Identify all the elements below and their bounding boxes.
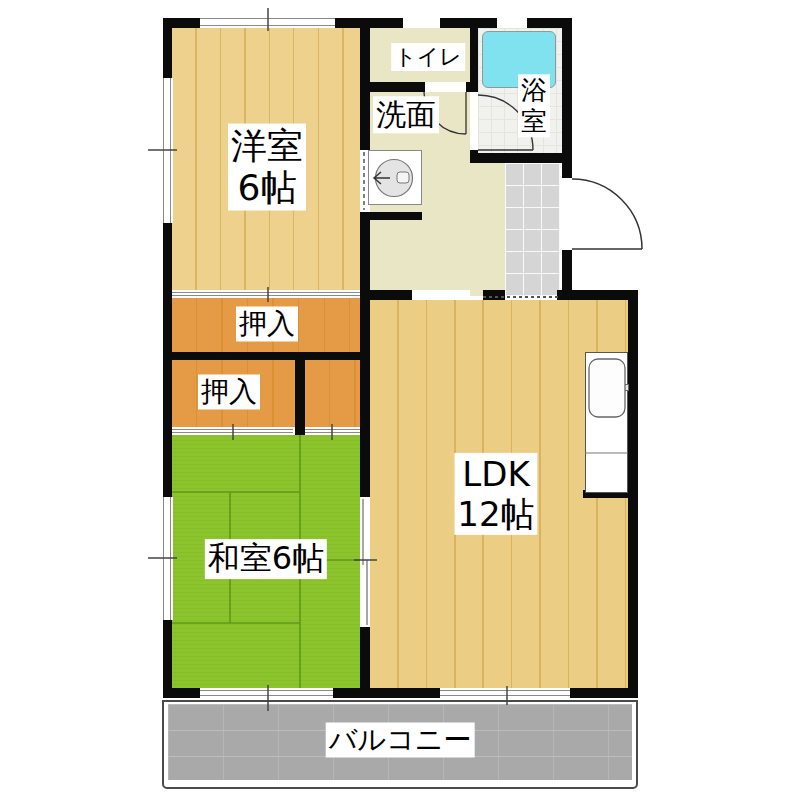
western-room-label: 洋室 6帖	[228, 124, 306, 211]
ldk-label: LDK 12帖	[454, 453, 537, 535]
fusuma-closet-lower	[172, 427, 293, 435]
wall-western-east-lower	[360, 220, 370, 290]
entrance-door-opening	[562, 178, 572, 250]
wall-mid-upper	[360, 290, 370, 497]
wall-step	[557, 290, 638, 300]
closet-upper-label: 押入	[236, 306, 298, 341]
wall-closet-bottom	[163, 352, 370, 360]
bathroom-label-line1: 浴	[521, 75, 547, 106]
kitchen-counter	[585, 352, 628, 493]
ldk-label-line2: 12帖	[457, 494, 534, 534]
window-bathroom-top	[497, 18, 527, 28]
wall-toilet-bottom-a	[360, 82, 425, 92]
apartment-floorplan: 洋室 6帖 トイレ 洗面 浴 室 押入 押入 和室6帖 LDK 12帖 バルコニ…	[0, 0, 800, 800]
washbasin-cabinet	[368, 150, 422, 205]
wall-closet-divider	[295, 360, 305, 435]
fusuma-closet-side	[305, 427, 360, 435]
wall-hall-south-b	[483, 290, 505, 300]
washroom-label: 洗面	[373, 96, 439, 133]
window-japanese-left	[161, 497, 173, 620]
bathroom-door-opening	[470, 92, 478, 150]
closet-lower-label: 押入	[198, 374, 260, 409]
wall-mid-lower	[360, 627, 370, 688]
western-room-label-line1: 洋室	[231, 125, 303, 167]
wall-right-lower	[628, 293, 638, 698]
window-western-top	[200, 16, 335, 28]
bathroom-label-line2: 室	[521, 106, 547, 137]
entry-tile-floor	[505, 163, 560, 296]
fusuma-closet-upper	[172, 290, 360, 298]
wall-washbasin-stub	[360, 212, 422, 220]
wall-right-upper	[562, 18, 572, 293]
window-ldk-balcony	[440, 688, 570, 698]
western-room-label-line2: 6帖	[231, 167, 303, 209]
balcony-label: バルコニー	[326, 722, 475, 757]
japanese-room-label: 和室6帖	[205, 539, 327, 579]
window-japanese-balcony	[200, 688, 333, 698]
toilet-door-opening	[425, 82, 466, 92]
window-toilet-top	[403, 18, 440, 28]
toilet-label: トイレ	[391, 43, 465, 71]
bathroom-label: 浴 室	[518, 74, 550, 137]
ldk-label-line1: LDK	[457, 454, 534, 494]
closet-side-floor	[305, 360, 360, 427]
japanese-ldk-sliding-opening	[360, 497, 370, 627]
window-western-left	[161, 78, 173, 223]
hall-floor	[470, 153, 505, 296]
kitchen-faucet	[612, 384, 629, 391]
wall-bathroom-left	[470, 18, 478, 92]
wall-bathroom-bottom	[470, 153, 562, 163]
entrance-door-swing	[572, 179, 642, 249]
